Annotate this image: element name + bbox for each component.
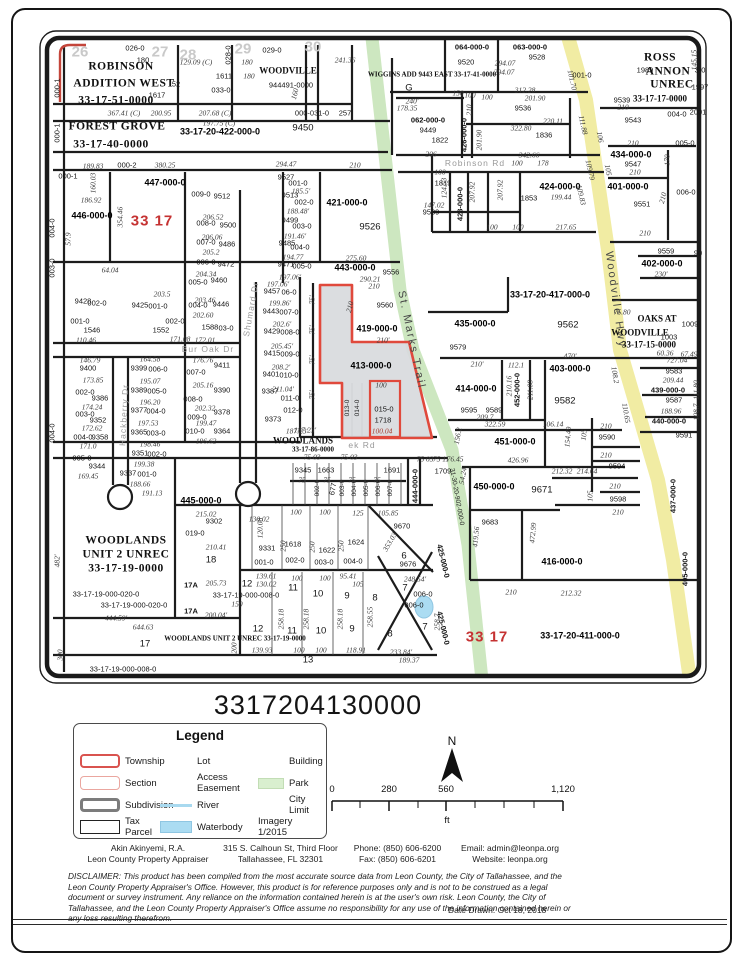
scale-unit-label: ft	[444, 815, 450, 826]
address-line1: 315 S. Calhoun St, Third Floor	[208, 843, 353, 854]
scale-tick-label: 280	[381, 784, 397, 795]
cul-de-sac	[236, 482, 260, 506]
address-line2: Tallahassee, FL 32301	[208, 854, 353, 865]
map-area: 2627282930ROBINSONADDITION WEST33-17-51-…	[0, 0, 741, 690]
email: Email: admin@leonpa.org	[450, 843, 570, 854]
bottom-double-rule	[13, 919, 727, 925]
phone: Phone: (850) 606-6200	[340, 843, 455, 854]
north-arrow-icon	[441, 748, 463, 782]
cul-de-sac	[108, 485, 132, 509]
scale-bar	[332, 801, 563, 811]
footer-web: Email: admin@leonpa.org Website: leonpa.…	[450, 843, 570, 865]
scale-tick-label: 0	[329, 784, 334, 795]
footer-appraiser: Akin Akinyemi, R.A. Leon County Property…	[68, 843, 228, 865]
disclaimer-text: DISCLAIMER: This product has been compil…	[68, 871, 580, 924]
north-scale-group: N 0 280 560 1,120 ft	[0, 690, 741, 840]
date-drawn: Date Drawn: Oct 18, 2018	[448, 905, 546, 915]
appraiser-name: Akin Akinyemi, R.A.	[68, 843, 228, 854]
footer-address: 315 S. Calhoun St, Third Floor Tallahass…	[208, 843, 353, 865]
waterbody-pond	[415, 596, 433, 618]
appraiser-office: Leon County Property Appraiser	[68, 854, 228, 865]
website: Website: leonpa.org	[450, 854, 570, 865]
map-canvas	[0, 0, 741, 690]
woodville-hwy-band	[567, 33, 690, 680]
scale-tick-label: 1,120	[551, 784, 575, 795]
fax: Fax: (850) 606-6201	[340, 854, 455, 865]
footer-phone: Phone: (850) 606-6200 Fax: (850) 606-620…	[340, 843, 455, 865]
map-report-page: 2627282930ROBINSONADDITION WEST33-17-51-…	[0, 0, 741, 960]
scale-tick-label: 560	[438, 784, 454, 795]
north-label: N	[448, 734, 457, 748]
